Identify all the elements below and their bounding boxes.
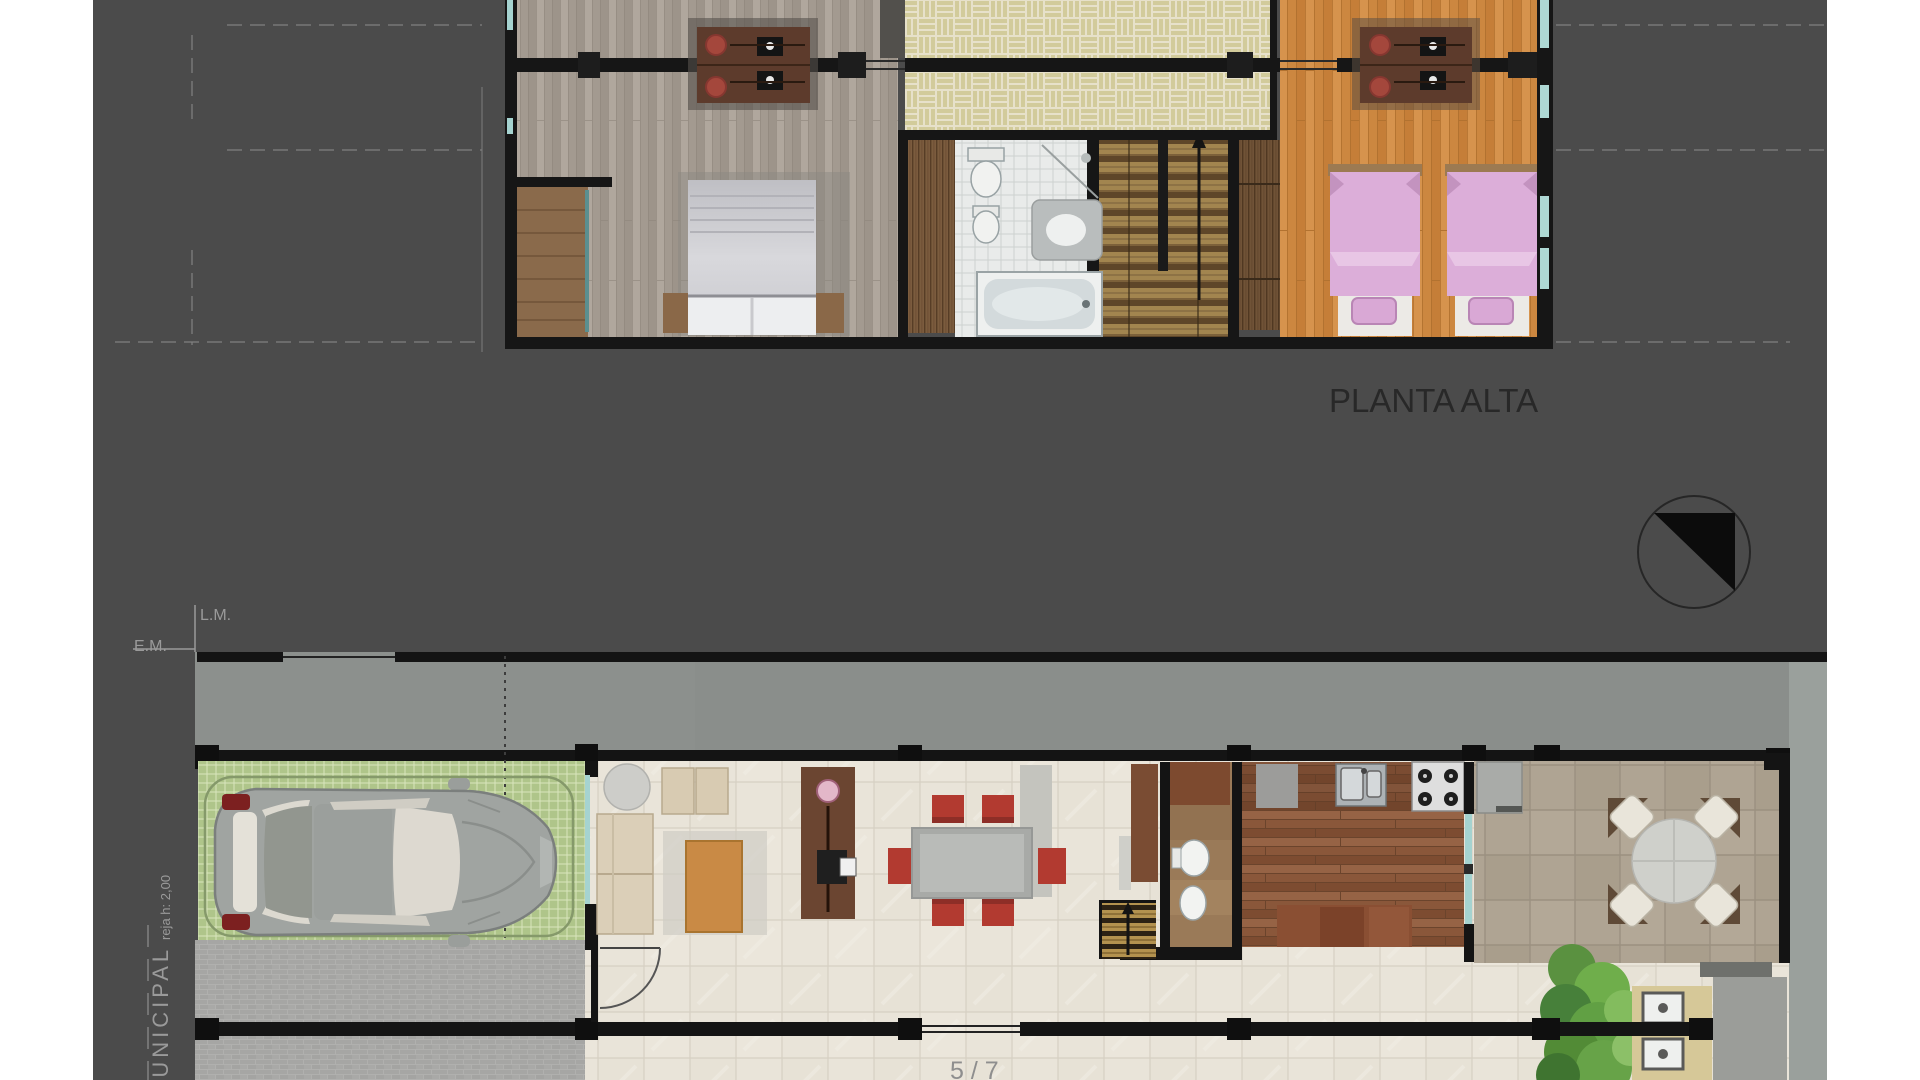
svg-text:E.M.: E.M.	[134, 638, 167, 655]
svg-text:5 / 7: 5 / 7	[950, 1057, 999, 1080]
svg-text:L.M.: L.M.	[200, 607, 231, 624]
svg-text:reja h: 2,00: reja h: 2,00	[158, 875, 173, 940]
svg-text:MUNICIPAL: MUNICIPAL	[148, 946, 173, 1080]
svg-text:PLANTA ALTA: PLANTA ALTA	[1329, 382, 1538, 419]
